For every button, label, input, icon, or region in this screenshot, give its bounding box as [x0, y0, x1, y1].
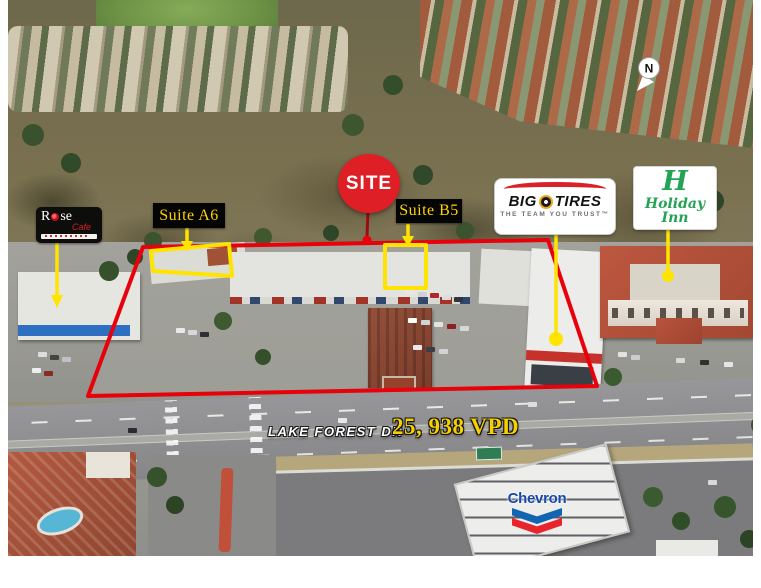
rose-cafe-name-part2: se: [60, 210, 72, 223]
site-pointer-dot: [363, 236, 372, 245]
chevron-wordmark: Chevron: [502, 490, 572, 507]
road-name-label: LAKE FOREST DR: [268, 424, 403, 439]
rose-cafe-subname: Cafe: [41, 223, 97, 232]
suite-a6-label: Suite A6: [153, 203, 225, 228]
rose-cafe-logo: R se Cafe: [36, 207, 102, 243]
aerial-site-map: N R se Cafe Suite A6 SITE Suite B5 BIG T…: [0, 0, 761, 588]
holiday-inn-pointer-dot: [662, 270, 674, 282]
holiday-inn-name: Holiday Inn: [634, 197, 716, 225]
annotation-overlay: N: [8, 0, 753, 556]
big-o-tires-logo: BIG TIRES THE TEAM YOU TRUST™: [495, 179, 615, 234]
suite-a6-highlight-box: [151, 244, 232, 276]
property-outline: [88, 240, 597, 396]
big-o-tagline: THE TEAM YOU TRUST™: [495, 211, 615, 218]
traffic-count-label: 25, 938 VPD: [392, 414, 519, 440]
rose-cafe-name-part1: R: [41, 210, 50, 223]
big-o-tires-pointer-dot: [549, 332, 563, 346]
big-o-tire-icon: [539, 195, 553, 209]
big-o-brand-row: BIG TIRES: [495, 193, 615, 210]
chevron-logo: Chevron: [502, 490, 572, 534]
site-badge: SITE: [338, 154, 400, 213]
aerial-photo: N R se Cafe Suite A6 SITE Suite B5 BIG T…: [8, 0, 753, 556]
rose-cafe-pointer-arrowhead: [51, 295, 63, 308]
rose-cafe-tagline-bar: [41, 234, 97, 239]
holiday-inn-logo: H Holiday Inn: [634, 167, 716, 229]
holiday-inn-monogram: H: [634, 167, 716, 197]
suite-b5-highlight-box: [385, 245, 426, 288]
big-o-brand-right: TIRES: [555, 193, 602, 210]
site-pointer-line: [367, 211, 368, 236]
suite-b5-label: Suite B5: [396, 199, 462, 223]
big-o-brand-left: BIG: [509, 193, 537, 210]
north-arrow-label: N: [645, 62, 654, 76]
rose-icon: [51, 213, 59, 221]
